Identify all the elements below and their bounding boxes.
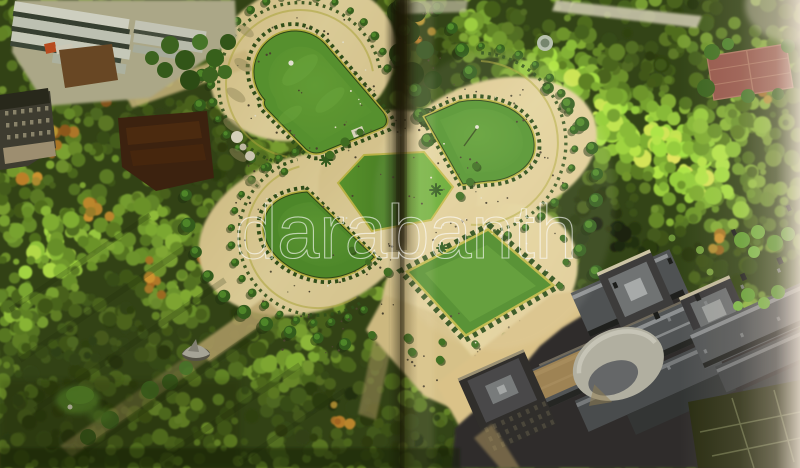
svg-text:darabanth: darabanth (235, 190, 577, 275)
